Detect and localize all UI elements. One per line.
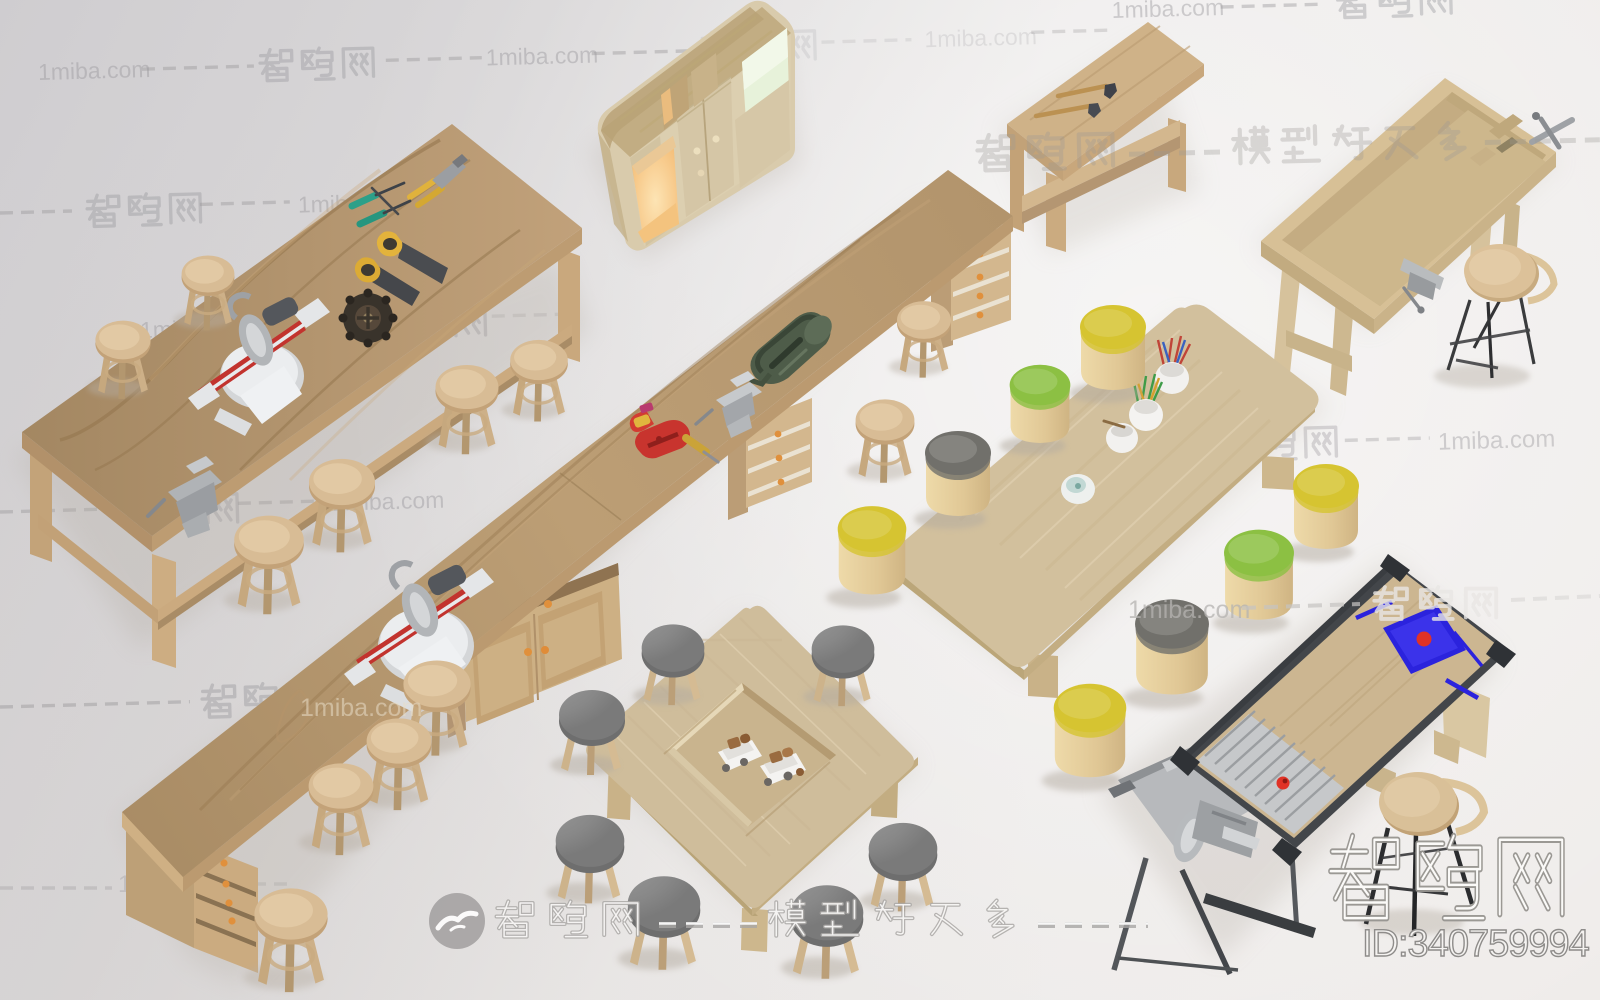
svg-text:1miba.com: 1miba.com	[1438, 425, 1556, 455]
svg-text:ID:340759994: ID:340759994	[1362, 923, 1590, 965]
svg-text:1miba.com: 1miba.com	[38, 56, 151, 85]
svg-text:1miba.com: 1miba.com	[485, 41, 598, 70]
svg-text:1miba.com: 1miba.com	[1128, 596, 1250, 624]
svg-text:1miba.com: 1miba.com	[300, 694, 422, 722]
svg-text:1miba.com: 1miba.com	[1111, 0, 1224, 23]
svg-text:1miba.com: 1miba.com	[924, 23, 1037, 52]
